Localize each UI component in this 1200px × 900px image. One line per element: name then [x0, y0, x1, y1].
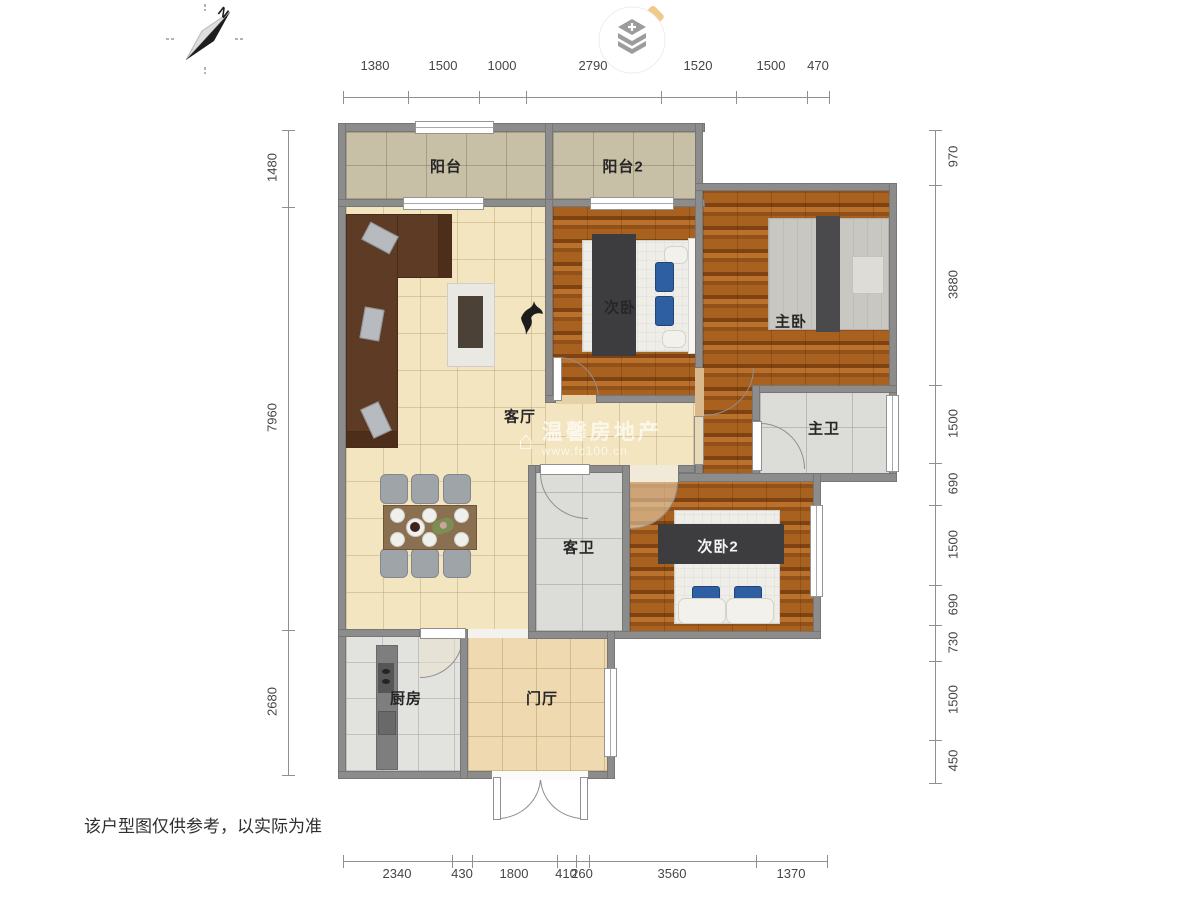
room-label-foyer: 门厅	[526, 688, 558, 709]
window-balcony1-living	[403, 197, 484, 210]
door-master-leaf	[694, 416, 704, 465]
dim-label: 7960	[265, 388, 280, 448]
room-label-bedroom3: 次卧2	[697, 536, 738, 557]
dimension-line	[343, 97, 829, 98]
dim-label: 1380	[350, 58, 400, 73]
house-icon: ⌂	[518, 427, 534, 453]
dim-tick	[929, 505, 942, 506]
room-label-master: 主卧	[775, 311, 807, 332]
dim-label: 260	[557, 866, 607, 881]
dimension-line	[343, 861, 827, 862]
door-bedroom2-leaf	[553, 357, 562, 401]
dim-label: 2680	[265, 672, 280, 732]
dim-tick	[929, 585, 942, 586]
entrance-door-right-leaf	[580, 777, 588, 820]
wall-bottom-mid	[528, 631, 821, 639]
dim-label: 1480	[265, 138, 280, 198]
dining-chair	[380, 548, 408, 578]
dim-tick	[736, 91, 737, 104]
wall-left	[338, 123, 346, 779]
watermark-title: 温馨房地产	[542, 422, 662, 444]
window-balcony-top	[415, 121, 494, 134]
wall-balcony-divider	[545, 123, 553, 207]
dim-label: 730	[946, 613, 961, 673]
dim-tick	[807, 91, 808, 104]
dim-label: 1500	[418, 58, 468, 73]
logo-badge-icon	[597, 4, 669, 76]
bedroom2-bed	[582, 238, 698, 352]
dim-label: 1500	[746, 58, 796, 73]
dimension-line	[288, 130, 289, 775]
dim-tick	[929, 385, 942, 386]
dim-tick	[282, 130, 295, 131]
dining-chair	[411, 548, 439, 578]
dim-label: 1800	[489, 866, 539, 881]
dim-tick	[829, 91, 830, 104]
wall-master-left-a	[695, 123, 703, 368]
dim-label: 450	[946, 731, 961, 791]
dim-tick	[343, 91, 344, 104]
room-label-balcony1: 阳台	[430, 156, 462, 177]
window-balcony2-bedroom2	[590, 197, 674, 210]
wall-kitchen-right	[460, 629, 468, 779]
dining-chair	[380, 474, 408, 504]
dim-label: 1370	[766, 866, 816, 881]
wall-hall-bottom-stub	[678, 465, 695, 473]
watermark-url: www.fc100.cn	[542, 444, 662, 458]
coffee-table	[447, 283, 495, 367]
dim-tick	[282, 775, 295, 776]
dim-tick	[282, 630, 295, 631]
dim-label: 970	[946, 127, 961, 187]
dim-tick	[661, 91, 662, 104]
dining-chair	[443, 548, 471, 578]
door-bedroom3-threshold	[630, 465, 678, 482]
dim-tick	[282, 207, 295, 208]
passage-threshold	[468, 629, 528, 638]
wall-master-top	[695, 183, 897, 191]
floorplan-page: 阳台 阳台2 次卧 主卧 客厅 主卫 客卫 次卧2 厨房 门厅 1380 150…	[0, 0, 1200, 900]
window-foyer	[604, 668, 617, 757]
door-master-threshold	[695, 368, 704, 416]
dim-tick	[827, 855, 828, 868]
bird-decor-icon	[518, 298, 544, 336]
dim-label: 1520	[673, 58, 723, 73]
dim-label: 3880	[946, 255, 961, 315]
dim-label: 1500	[946, 394, 961, 454]
dim-label: 2340	[372, 866, 422, 881]
dining-table	[383, 505, 477, 550]
dim-tick	[756, 855, 757, 868]
sink	[378, 711, 396, 735]
dim-tick	[479, 91, 480, 104]
wall-mid-strip-b	[678, 473, 897, 482]
dim-label: 1500	[946, 670, 961, 730]
window-master-bath	[886, 395, 899, 472]
dining-set	[374, 474, 478, 576]
disclaimer-text: 该户型图仅供参考，以实际为准	[84, 812, 322, 837]
wall-guest-bath-right	[622, 465, 630, 639]
room-label-balcony2: 阳台2	[602, 156, 643, 177]
dim-tick	[929, 625, 942, 626]
wall-bedroom2-bottom-b	[596, 395, 701, 403]
door-bedroom2-threshold	[556, 395, 596, 404]
dim-tick	[929, 130, 942, 131]
dim-tick	[929, 463, 942, 464]
wall-top	[338, 123, 705, 132]
svg-text:N: N	[215, 4, 232, 22]
door-kitchen-leaf	[420, 628, 466, 639]
watermark: ⌂ 温馨房地产 www.fc100.cn	[518, 422, 662, 458]
wall-kitchen-top-a	[338, 629, 420, 637]
dimension-line	[935, 130, 936, 783]
dim-tick	[408, 91, 409, 104]
wall-bedroom2-left	[545, 199, 553, 403]
dim-tick	[526, 91, 527, 104]
dining-chair	[443, 474, 471, 504]
bedroom3-bed	[672, 508, 780, 626]
wall-master-bath-left-a	[752, 385, 760, 421]
dim-tick	[929, 185, 942, 186]
sofa	[346, 214, 452, 448]
dim-label: 1000	[477, 58, 527, 73]
room-label-kitchen: 厨房	[390, 688, 422, 709]
dim-label: 3560	[647, 866, 697, 881]
entrance-door-left-leaf	[493, 777, 501, 820]
room-label-guest-bath: 客卫	[563, 537, 595, 558]
door-master-bath-leaf	[752, 421, 762, 471]
dim-tick	[929, 740, 942, 741]
dim-label: 470	[793, 58, 843, 73]
dim-tick	[929, 783, 942, 784]
room-label-bedroom2: 次卧	[604, 297, 636, 318]
fruit-bowl	[406, 518, 425, 537]
dining-chair	[411, 474, 439, 504]
compass-icon: N	[160, 0, 250, 78]
wall-master-bath-top	[752, 385, 897, 393]
room-label-master-bath: 主卫	[808, 418, 840, 439]
dim-label: 1500	[946, 515, 961, 575]
door-guest-bath-leaf	[540, 464, 590, 475]
wall-guest-bath-left	[528, 465, 536, 639]
entrance-threshold	[492, 771, 588, 780]
entrance-door-right-arc	[540, 777, 584, 819]
window-bedroom3	[810, 505, 823, 597]
dim-label: 430	[437, 866, 487, 881]
entrance-door-left-arc	[497, 777, 541, 819]
dim-tick	[343, 855, 344, 868]
dim-label: 690	[946, 454, 961, 514]
dim-tick	[929, 661, 942, 662]
